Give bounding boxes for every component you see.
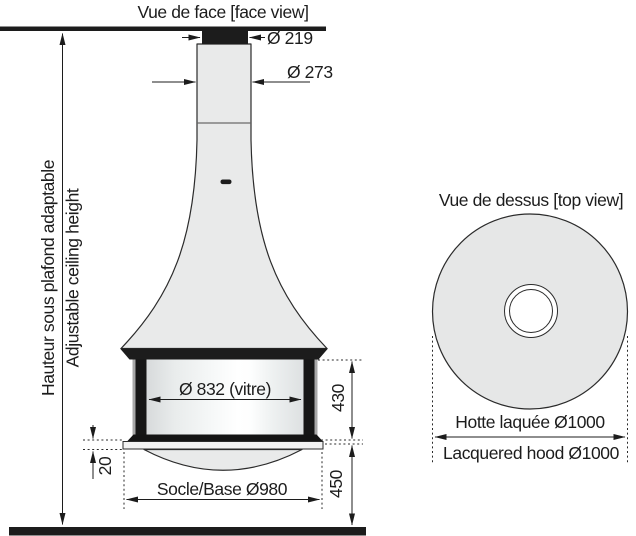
ceiling-height-label-en: Adjustable ceiling height <box>63 188 83 367</box>
face-view-title: Vue de face [face view] <box>137 2 308 22</box>
fireplace-technical-drawing: Vue de face [face view] Ø 219 Ø 273 Haut… <box>0 0 636 536</box>
glass-frame-right <box>304 360 315 442</box>
hood-diameter-label-en: Lacquered hood Ø1000 <box>443 443 620 463</box>
diagram-svg: Vue de face [face view] Ø 219 Ø 273 Haut… <box>0 0 636 536</box>
base-height-label: 450 <box>326 469 346 498</box>
glass-diameter-label: Ø 832 (vitre) <box>179 379 271 399</box>
glass-frame-edge-left <box>133 360 136 442</box>
base-plate-thickness-label: 20 <box>95 456 115 475</box>
glass-frame-left <box>136 360 147 442</box>
hood-diameter-label-fr: Hotte laquée Ø1000 <box>455 412 605 432</box>
damper-handle <box>221 180 232 185</box>
floor-line <box>9 527 366 536</box>
glass-frame-edge-right <box>315 360 318 442</box>
flue-collar-diameter-label: Ø 219 <box>267 28 313 48</box>
glass-cylinder <box>147 360 305 442</box>
hood-body <box>121 44 327 349</box>
ceiling-height-label-fr: Hauteur sous plafond adaptable <box>38 160 58 396</box>
hood-rim <box>120 349 328 360</box>
flue-pipe-diameter-label: Ø 273 <box>287 62 333 82</box>
glass-height-label: 430 <box>328 383 348 412</box>
top-view-title: Vue de dessus [top view] <box>439 190 623 210</box>
flue-opening-inner-circle <box>510 290 553 333</box>
firebox-bottom-band <box>127 435 323 442</box>
ceiling-collar <box>202 31 248 44</box>
base-plate <box>123 442 323 450</box>
base-diameter-label: Socle/Base Ø980 <box>157 479 288 499</box>
base-dish <box>144 450 302 471</box>
